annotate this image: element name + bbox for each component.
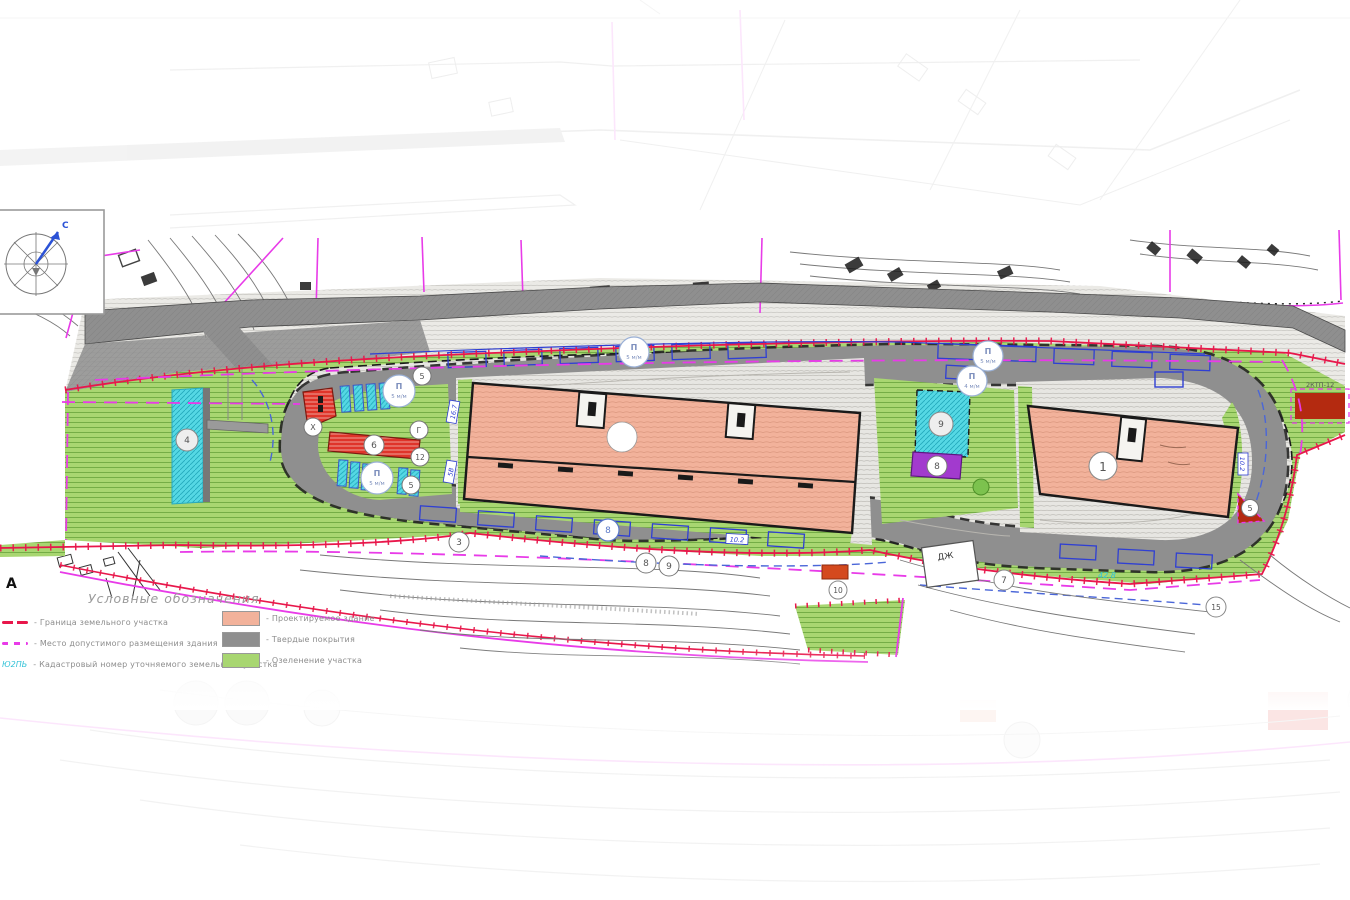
parking-badge: П5 м/м — [619, 337, 649, 367]
svg-text:П: П — [631, 343, 638, 352]
elevation-label: 10.2 — [726, 533, 748, 544]
dimension-label: 42.8 — [1098, 571, 1116, 580]
svg-text:10.2: 10.2 — [1238, 457, 1246, 471]
elevation-label: 10.2 — [1238, 453, 1248, 475]
marker-g: Г — [410, 421, 428, 439]
legend-swatch-greenery — [222, 653, 260, 668]
marker-15: 15 — [1206, 597, 1226, 617]
svg-text:П: П — [396, 382, 403, 391]
legend-label: - Проектируемое здание — [266, 614, 375, 623]
marker-5b: 5 — [413, 367, 431, 385]
svg-text:Х: Х — [310, 423, 316, 432]
svg-text:3: 3 — [456, 538, 462, 548]
marker-5t: 5 — [1242, 500, 1259, 517]
marker-8b: 8 — [636, 553, 656, 573]
svg-text:15: 15 — [1211, 603, 1221, 612]
marker-4: 4 — [176, 429, 198, 451]
green-wedge — [795, 600, 905, 655]
svg-text:10.2: 10.2 — [730, 536, 745, 545]
svg-text:П: П — [969, 372, 976, 381]
marker-12: 12 — [411, 448, 429, 466]
svg-text:5: 5 — [419, 372, 424, 381]
svg-text:5 м/м: 5 м/м — [626, 355, 641, 361]
svg-text:5 м/м: 5 м/м — [369, 481, 384, 487]
marker-building-a — [607, 422, 637, 452]
legend-symbol-placement — [2, 642, 28, 645]
svg-text:1: 1 — [1099, 460, 1107, 474]
svg-text:5: 5 — [408, 481, 413, 490]
legend-label: - Озеленение участка — [266, 656, 362, 665]
marker-x: Х — [304, 418, 322, 436]
svg-text:5 м/м: 5 м/м — [980, 359, 995, 365]
marker-9b: 9 — [659, 556, 679, 576]
marker-8m: 8 — [927, 456, 947, 476]
marker-8r: 8 — [597, 519, 619, 541]
marker-5a: 5 — [402, 476, 420, 494]
marker-6: 6 — [364, 435, 384, 455]
legend-symbol-cadastral-number: Ю2ПЬ — [2, 660, 27, 669]
legend-swatch-paving — [222, 632, 260, 647]
substation-block — [1295, 393, 1345, 419]
svg-text:10: 10 — [833, 586, 843, 595]
parking-badge: П5 м/м — [383, 375, 415, 407]
svg-text:5 м/м: 5 м/м — [391, 394, 406, 400]
compass-rose: С — [0, 210, 104, 314]
svg-text:5: 5 — [1247, 504, 1252, 513]
svg-text:4 м/м: 4 м/м — [964, 384, 979, 390]
legend-swatch-building — [222, 611, 260, 626]
svg-text:8: 8 — [934, 462, 940, 472]
marker-10: 10 — [822, 565, 848, 599]
legend-label: - Твердые покрытия — [266, 635, 355, 644]
legend-label: - Место допустимого размещения здания — [34, 639, 218, 648]
marker-9m: 9 — [929, 412, 953, 436]
svg-text:8: 8 — [643, 559, 649, 569]
faded-bottom-map — [0, 680, 1350, 882]
svg-text:6: 6 — [371, 441, 377, 451]
svg-text:9: 9 — [938, 420, 944, 430]
marker-7: 7 — [994, 570, 1014, 590]
legend-symbol-boundary — [2, 621, 28, 624]
legend-label: - Граница земельного участка — [34, 618, 168, 627]
svg-text:П: П — [985, 347, 992, 356]
svg-text:12: 12 — [415, 453, 425, 462]
svg-text:7: 7 — [1001, 576, 1007, 586]
letter-a-label: А — [6, 576, 17, 592]
legend: Условные обозначения - Граница земельног… — [0, 591, 420, 686]
svg-text:П: П — [374, 469, 381, 478]
svg-text:4: 4 — [184, 436, 190, 446]
marker-3: 3 — [449, 532, 469, 552]
substation-label: 2КТП-12 — [1306, 381, 1334, 389]
svg-text:Г: Г — [417, 426, 422, 435]
site-plan-drawing: 1 4 6 9 8 5 Х Г 12 5 5 3 8 9 10 15 7 8 П… — [0, 0, 1350, 900]
svg-text:9: 9 — [666, 562, 672, 572]
legend-title: Условные обозначения — [88, 591, 260, 606]
parking-badge: П5 м/м — [361, 462, 393, 494]
parking-badge: П4 м/м — [957, 366, 987, 396]
faded-top-map — [0, 0, 1350, 228]
svg-text:8: 8 — [605, 526, 611, 536]
marker-building-b: 1 — [1089, 452, 1117, 480]
north-label: С — [62, 221, 69, 231]
